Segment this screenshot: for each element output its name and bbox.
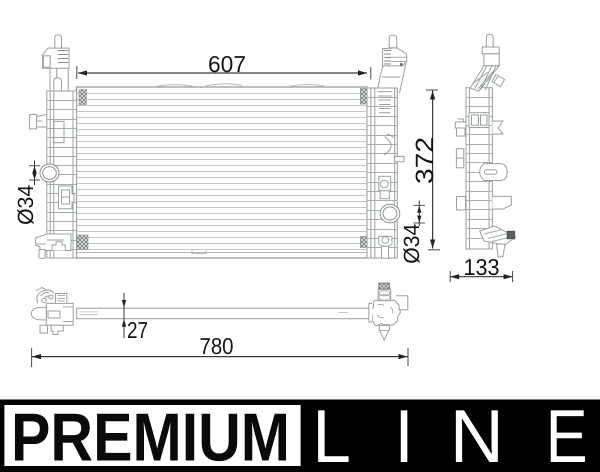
svg-text:N: N [450, 394, 504, 472]
svg-text:133: 133 [464, 254, 500, 280]
svg-text:Ø34: Ø34 [399, 224, 424, 264]
svg-text:E: E [546, 394, 588, 472]
svg-text:372: 372 [411, 137, 439, 184]
svg-text:Ø34: Ø34 [13, 185, 38, 225]
svg-text:I: I [394, 394, 413, 472]
svg-text:27: 27 [127, 317, 148, 343]
svg-text:PREMIUM: PREMIUM [11, 400, 290, 472]
svg-text:L: L [313, 394, 351, 472]
svg-text:607: 607 [208, 51, 246, 77]
svg-text:780: 780 [200, 333, 234, 359]
